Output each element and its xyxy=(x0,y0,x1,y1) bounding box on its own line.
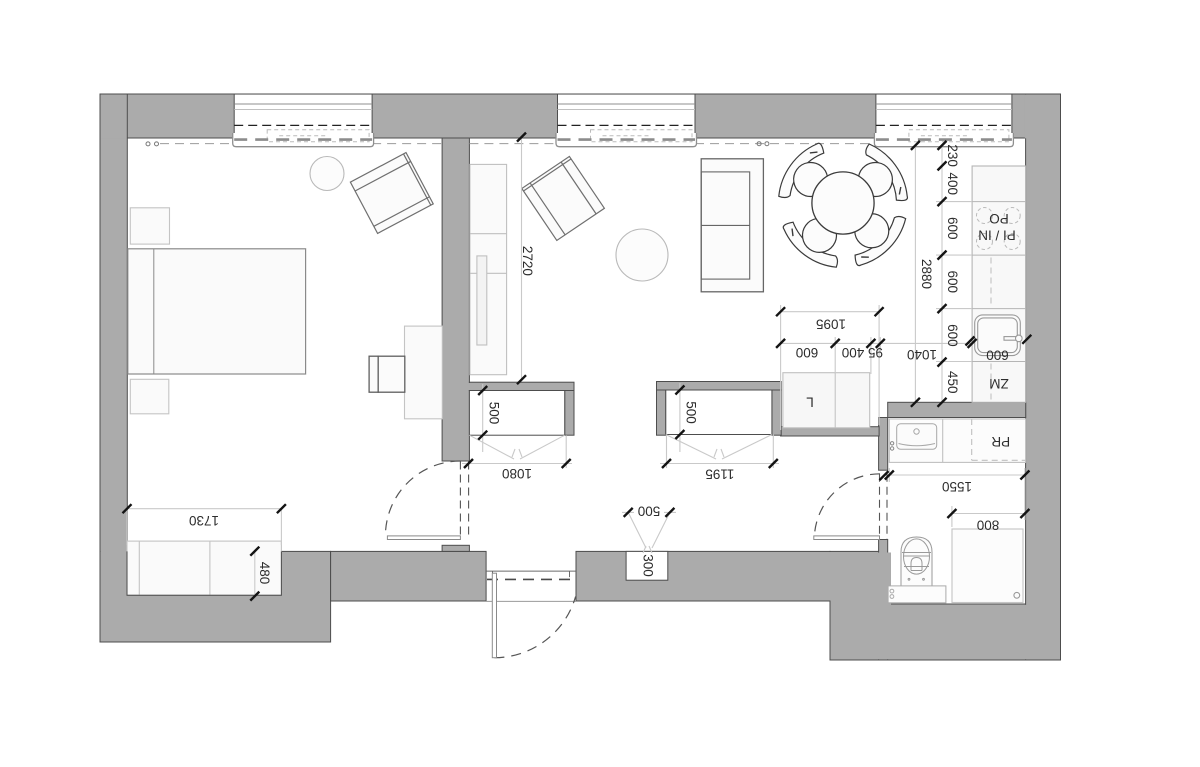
svg-text:1730: 1730 xyxy=(189,513,219,528)
svg-text:1095: 1095 xyxy=(816,317,846,332)
svg-text:1195: 1195 xyxy=(705,467,734,482)
svg-text:PI / IN: PI / IN xyxy=(978,228,1016,243)
svg-text:300: 300 xyxy=(641,554,656,577)
svg-text:600: 600 xyxy=(986,348,1009,363)
svg-text:400: 400 xyxy=(842,345,865,360)
svg-text:500: 500 xyxy=(638,504,661,519)
svg-text:600: 600 xyxy=(796,345,819,360)
svg-text:600: 600 xyxy=(945,217,960,240)
svg-text:1080: 1080 xyxy=(502,466,532,481)
svg-text:1040: 1040 xyxy=(907,347,937,362)
svg-text:480: 480 xyxy=(257,562,272,585)
svg-text:600: 600 xyxy=(945,324,960,347)
svg-text:95: 95 xyxy=(868,345,883,360)
svg-text:PR: PR xyxy=(991,434,1010,449)
svg-text:600: 600 xyxy=(945,271,960,294)
svg-text:2720: 2720 xyxy=(520,246,535,276)
svg-text:500: 500 xyxy=(487,402,502,425)
svg-text:L: L xyxy=(806,395,814,410)
svg-text:450: 450 xyxy=(945,371,960,394)
svg-text:400: 400 xyxy=(945,172,960,195)
svg-text:230: 230 xyxy=(945,144,960,167)
svg-text:500: 500 xyxy=(684,401,699,424)
svg-text:1550: 1550 xyxy=(942,479,972,494)
svg-text:ZM: ZM xyxy=(989,376,1009,391)
svg-text:800: 800 xyxy=(977,518,1000,533)
svg-text:2880: 2880 xyxy=(919,259,934,289)
svg-text:PO: PO xyxy=(989,211,1009,226)
